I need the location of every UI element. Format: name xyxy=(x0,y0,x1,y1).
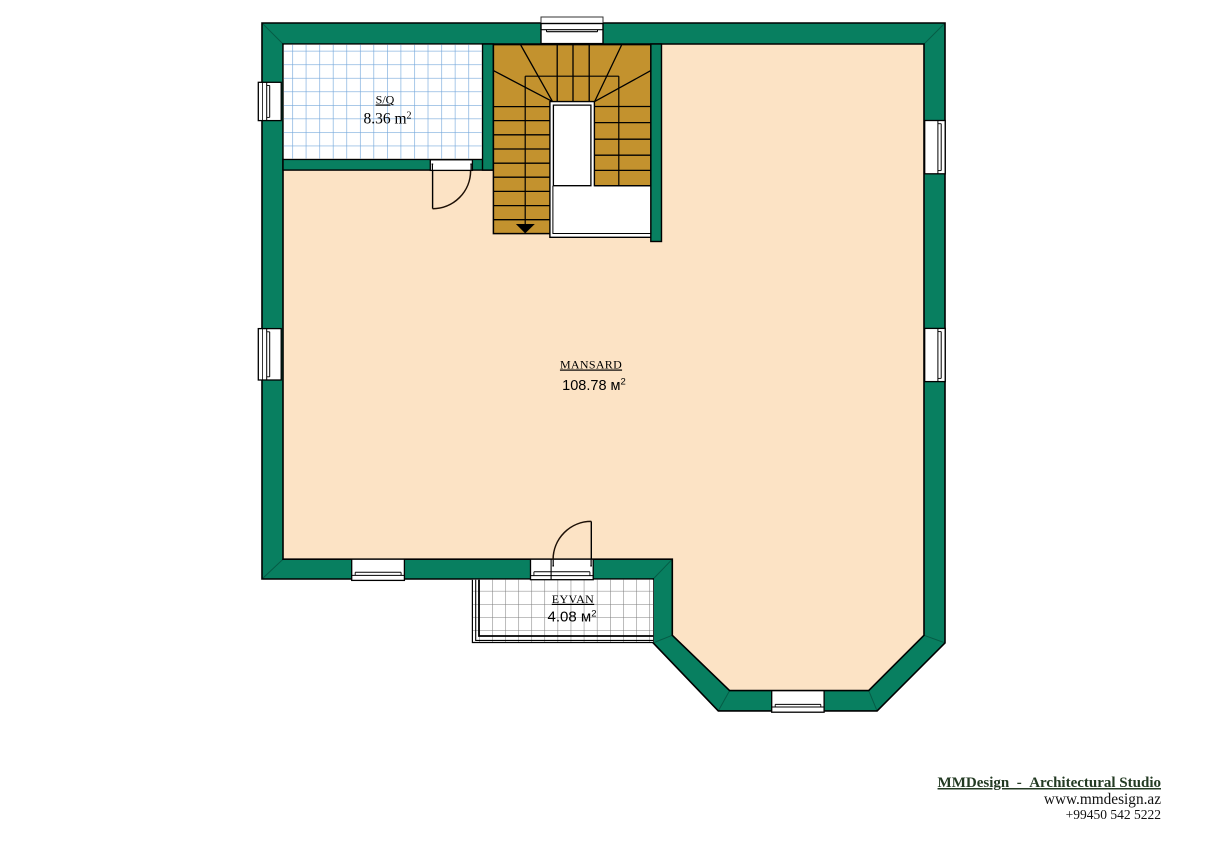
svg-text:S/Q: S/Q xyxy=(376,93,395,107)
svg-text:MMDesign - Architectural Stu: MMDesign - Architectural Studio xyxy=(938,775,1161,791)
svg-text:4.08 м2: 4.08 м2 xyxy=(548,609,597,626)
svg-text:108.78 м2: 108.78 м2 xyxy=(562,377,626,395)
svg-text:MANSARD: MANSARD xyxy=(560,358,622,372)
svg-text:+99450 542 5222: +99450 542 5222 xyxy=(1066,807,1161,822)
svg-text:8.36 m2: 8.36 m2 xyxy=(363,111,411,128)
svg-text:www.mmdesign.az: www.mmdesign.az xyxy=(1044,791,1161,808)
svg-text:EYVAN: EYVAN xyxy=(552,592,594,606)
